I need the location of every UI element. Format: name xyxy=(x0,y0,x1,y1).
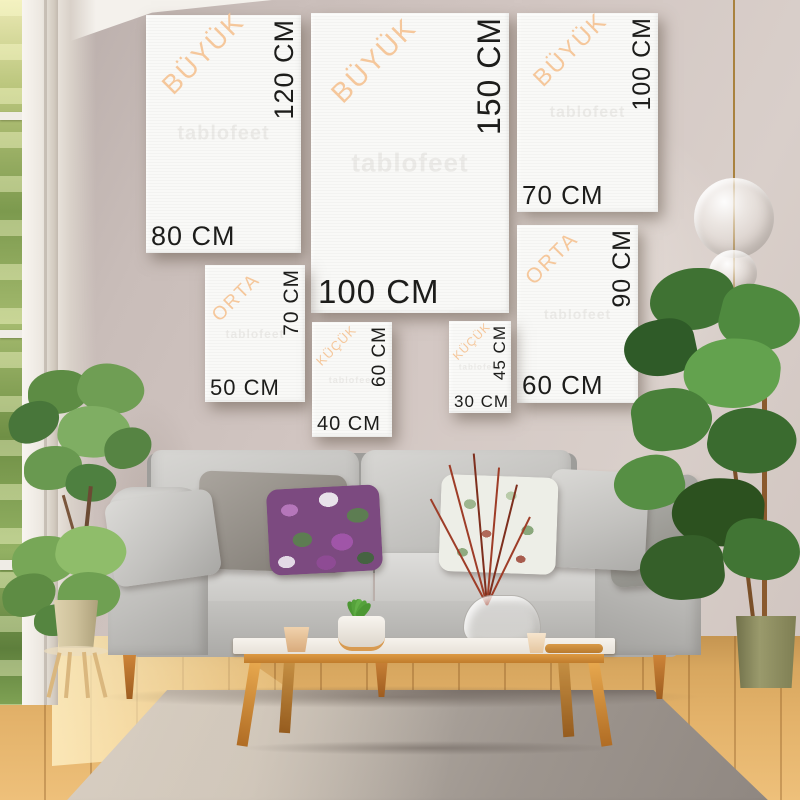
watermark: tablofeet xyxy=(550,104,626,122)
monstera-plant xyxy=(612,268,800,700)
canvas-width-label: 100 CM xyxy=(318,273,440,311)
canvas-sample-100x150: tablofeet BÜYÜK 150 CM 100 CM xyxy=(311,13,509,313)
size-category-label: ORTA xyxy=(208,269,265,326)
size-category-label: BÜYÜK xyxy=(156,6,251,101)
table-leg xyxy=(558,661,574,738)
canvas-height-label: 70 CM xyxy=(280,269,304,336)
size-category-label: BÜYÜK xyxy=(325,12,423,110)
canvas-height-label: 45 CM xyxy=(490,325,510,380)
watermark: tablofeet xyxy=(225,327,284,341)
size-category-label: ORTA xyxy=(521,227,584,290)
canvas-height-label: 100 CM xyxy=(628,17,657,111)
canvas-width-label: 70 CM xyxy=(522,180,604,211)
canvas-sample-50x70: tablofeet ORTA 70 CM 50 CM xyxy=(205,265,305,402)
monstera-leaf xyxy=(703,401,800,481)
watermark: tablofeet xyxy=(177,123,269,146)
pendant-glass-globe-large xyxy=(694,178,774,258)
monstera-leaf xyxy=(637,532,727,604)
size-category-label: KÜÇÜK xyxy=(450,320,493,363)
stool-leg xyxy=(82,652,90,698)
stool-leg xyxy=(92,652,107,698)
window-muntin xyxy=(0,330,22,338)
canvas-height-label: 150 CM xyxy=(471,17,508,135)
plant-pot xyxy=(52,600,100,648)
coffee-table xyxy=(228,445,623,755)
canvas-width-label: 50 CM xyxy=(210,375,280,401)
table-leg xyxy=(279,661,295,734)
decorative-red-branches xyxy=(428,445,548,605)
potted-tree-on-stool xyxy=(0,368,158,703)
canvas-height-label: 90 CM xyxy=(608,229,637,308)
canvas-sample-30x45: tablofeet KÜÇÜK 45 CM 30 CM xyxy=(449,321,511,413)
canvas-sample-40x60: tablofeet KÜÇÜK 60 CM 40 CM xyxy=(312,322,392,437)
wooden-tray xyxy=(545,644,603,653)
table-apron xyxy=(244,654,604,663)
stool-leg xyxy=(64,652,72,698)
watermark: tablofeet xyxy=(351,148,468,179)
window-muntin xyxy=(0,112,22,120)
size-category-label: BÜYÜK xyxy=(528,7,613,92)
canvas-height-label: 60 CM xyxy=(369,326,391,387)
size-category-label: KÜÇÜK xyxy=(313,322,359,368)
table-leg xyxy=(237,660,261,747)
canvas-sample-80x120: tablofeet BÜYÜK 120 CM 80 CM xyxy=(146,15,301,253)
watermark: tablofeet xyxy=(544,306,611,322)
living-room-canvas-size-guide: tablofeet BÜYÜK 120 CM 80 CM tablofeet B… xyxy=(0,0,800,800)
canvas-width-label: 30 CM xyxy=(454,392,509,412)
planter-bowl xyxy=(338,616,385,651)
canvas-sample-70x100: tablofeet BÜYÜK 100 CM 70 CM xyxy=(517,13,658,212)
stool-leg xyxy=(46,652,61,698)
table-shadow xyxy=(238,741,618,755)
canvas-width-label: 80 CM xyxy=(151,221,236,252)
canvas-height-label: 120 CM xyxy=(269,19,300,120)
stool xyxy=(44,646,108,656)
table-leg xyxy=(588,660,612,747)
plant-pot xyxy=(734,616,798,688)
succulent xyxy=(340,591,380,619)
branch xyxy=(449,465,488,606)
canvas-width-label: 40 CM xyxy=(317,413,381,436)
canvas-width-label: 60 CM xyxy=(522,370,604,401)
